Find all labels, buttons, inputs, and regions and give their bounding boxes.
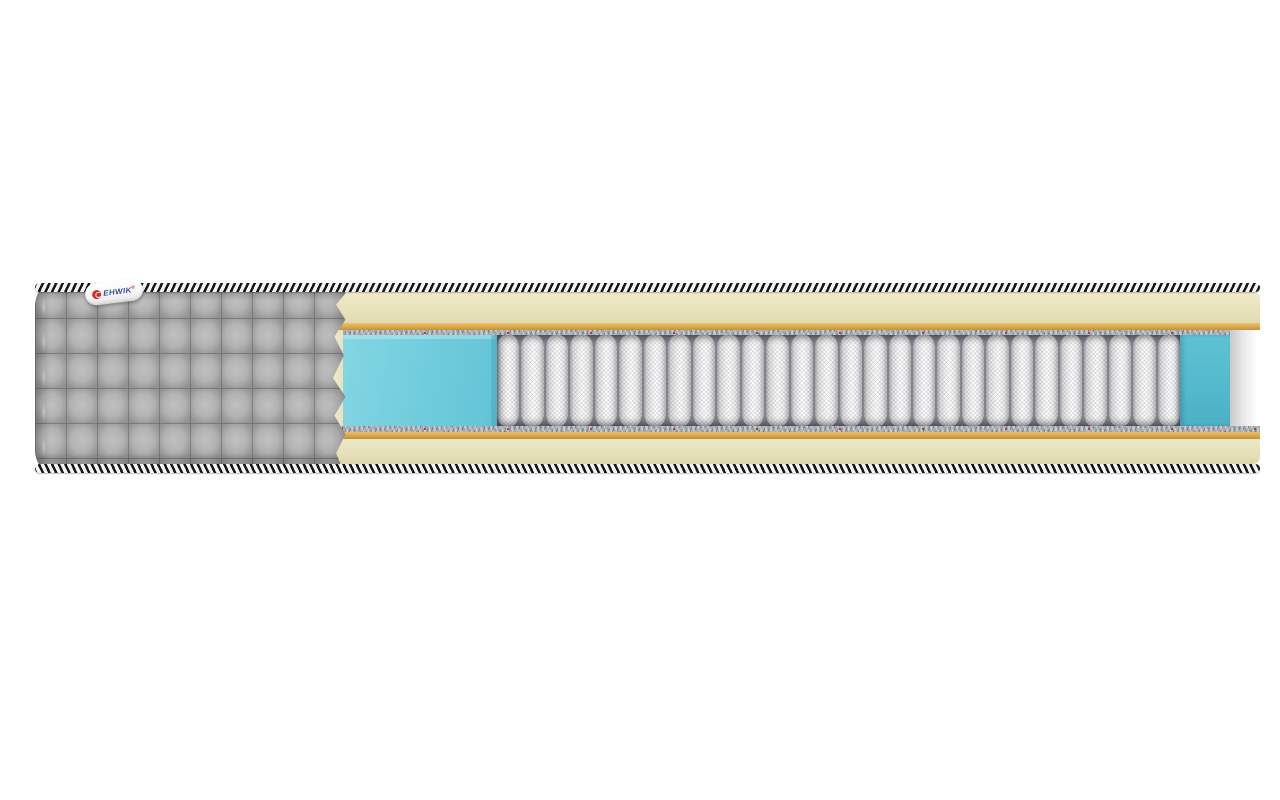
pocket-spring-coil xyxy=(546,335,568,426)
pocket-spring-coil xyxy=(595,335,617,426)
bottom-foam-layer xyxy=(331,439,1260,464)
product-render-canvas: EHWIK® xyxy=(0,0,1280,800)
top-latex-layer xyxy=(331,323,1260,330)
pocket-spring-coil xyxy=(913,335,935,426)
pocket-spring-coil xyxy=(1084,335,1106,426)
gel-foam-block xyxy=(343,335,497,426)
pocket-spring-coil xyxy=(1035,335,1057,426)
mattress-cross-section xyxy=(331,292,1260,464)
mattress-cutaway: EHWIK® xyxy=(35,283,1260,473)
trademark-icon: ® xyxy=(131,285,136,291)
pocket-spring-coil xyxy=(1109,335,1131,426)
pocket-spring-coil xyxy=(962,335,984,426)
top-foam-layer xyxy=(331,292,1260,323)
pocket-spring-coil xyxy=(815,335,837,426)
pocket-spring-coil xyxy=(668,335,690,426)
pocket-spring-coil xyxy=(1011,335,1033,426)
pocket-spring-coil xyxy=(1133,335,1155,426)
pocket-spring-coil xyxy=(521,335,543,426)
pocket-spring-coil xyxy=(791,335,813,426)
top-edge-braid xyxy=(35,283,1260,292)
cutaway-void-shadow xyxy=(1230,330,1260,431)
pocket-spring-coil xyxy=(864,335,886,426)
pocket-spring-coil xyxy=(1060,335,1082,426)
pocket-spring-coil xyxy=(742,335,764,426)
quilted-cover xyxy=(35,284,347,472)
bottom-latex-layer xyxy=(331,432,1260,439)
pocket-spring-coil xyxy=(497,335,519,426)
spring-core-band xyxy=(331,335,1260,426)
brand-logo-icon xyxy=(92,289,102,299)
pocket-spring-coil xyxy=(937,335,959,426)
pocket-spring-coil xyxy=(986,335,1008,426)
pocket-spring-coil xyxy=(570,335,592,426)
pocket-spring-coil xyxy=(840,335,862,426)
bottom-edge-braid xyxy=(35,464,1260,473)
pocket-spring-coil xyxy=(644,335,666,426)
pocket-spring-coil xyxy=(766,335,788,426)
pocket-spring-coil xyxy=(889,335,911,426)
pocket-spring-coil xyxy=(717,335,739,426)
pocket-spring-coil xyxy=(619,335,641,426)
brand-tag-label: EHWIK® xyxy=(103,285,137,298)
right-foam-side-wall xyxy=(1180,335,1230,426)
pocket-spring-coil xyxy=(1158,335,1180,426)
pocket-spring-unit xyxy=(497,335,1180,426)
pocket-spring-coil xyxy=(693,335,715,426)
